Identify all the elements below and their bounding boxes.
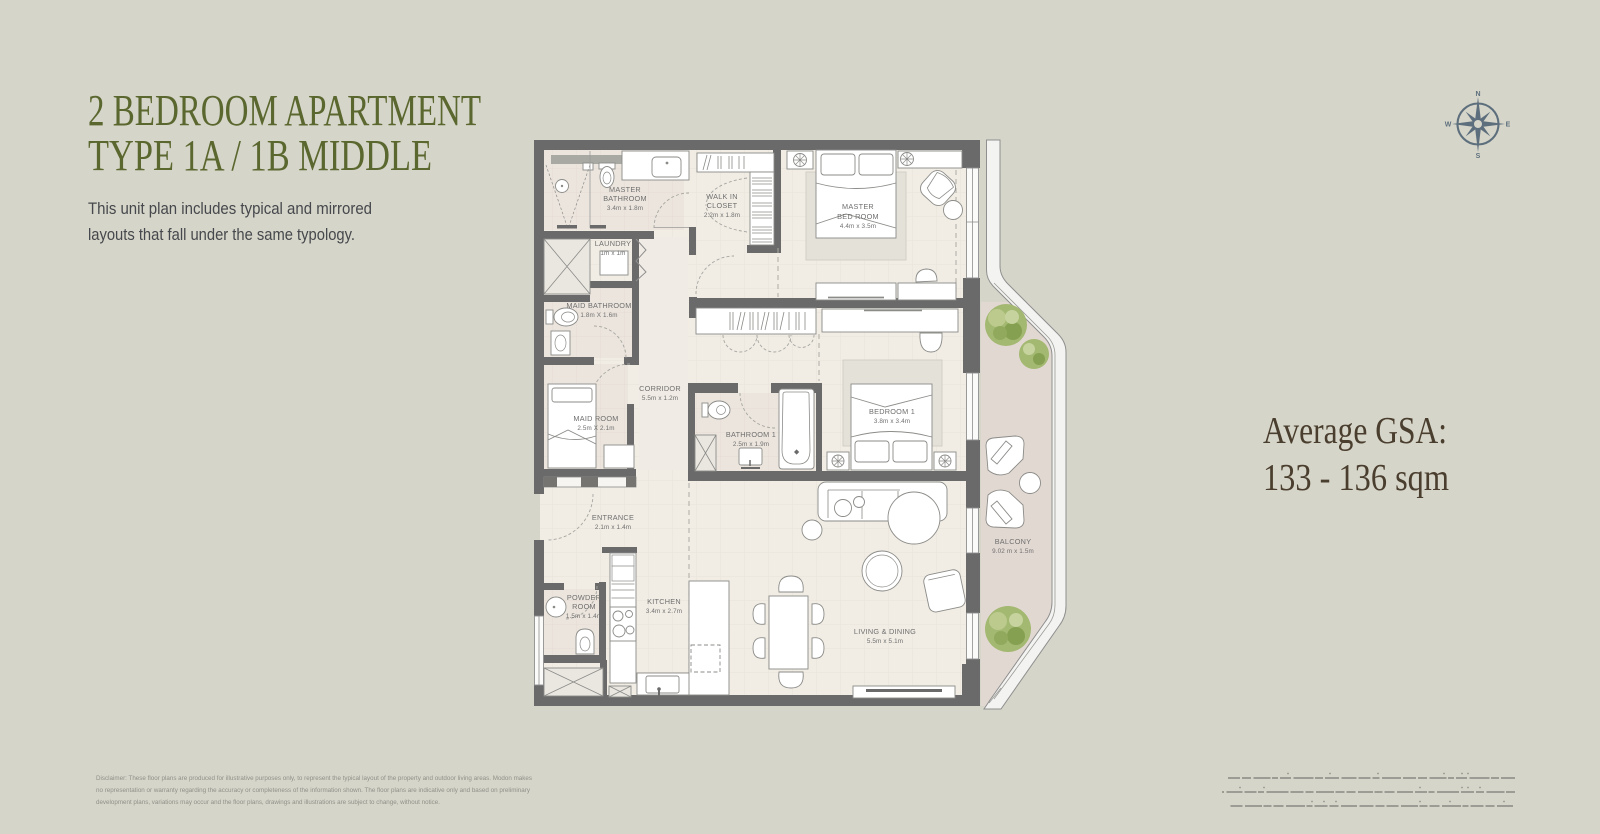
svg-text:ENTRANCE: ENTRANCE (592, 513, 634, 522)
svg-text:CORRIDOR: CORRIDOR (639, 384, 681, 393)
svg-text:development plans, variations: development plans, variations may occur … (96, 799, 440, 806)
svg-text:5.5m x 5.1m: 5.5m x 5.1m (867, 638, 903, 645)
svg-text:1.8m X 1.6m: 1.8m X 1.6m (580, 312, 617, 319)
svg-text:2.5m x 1.9m: 2.5m x 1.9m (733, 441, 769, 448)
svg-text:1.5m x 1.4m: 1.5m x 1.4m (566, 613, 602, 620)
svg-text:CLOSET: CLOSET (707, 201, 738, 210)
svg-text:W: W (1445, 122, 1452, 129)
svg-text:POWDER: POWDER (567, 593, 601, 602)
svg-text:Average GSA:: Average GSA: (1263, 410, 1447, 452)
svg-text:BED ROOM: BED ROOM (837, 212, 879, 221)
svg-text:no representation or warranty: no representation or warranty regarding … (96, 787, 531, 794)
svg-text:2 BEDROOM APARTMENT: 2 BEDROOM APARTMENT (88, 86, 481, 135)
svg-text:LIVING & DINING: LIVING & DINING (854, 627, 916, 636)
svg-text:layouts that fall under the sa: layouts that fall under the same typolog… (88, 226, 355, 244)
svg-text:2.1m x 1.4m: 2.1m x 1.4m (595, 524, 631, 531)
svg-text:BATHROOM: BATHROOM (603, 194, 647, 203)
svg-text:BEDROOM 1: BEDROOM 1 (869, 407, 915, 416)
svg-text:MASTER: MASTER (609, 185, 641, 194)
svg-text:Disclaimer: These floor plans: Disclaimer: These floor plans are produc… (96, 775, 533, 782)
svg-text:TYPE 1A / 1B MIDDLE: TYPE 1A / 1B MIDDLE (88, 131, 432, 180)
svg-text:ROOM: ROOM (572, 602, 596, 611)
svg-text:BALCONY: BALCONY (995, 537, 1032, 546)
svg-text:2.2m x 1.8m: 2.2m x 1.8m (704, 212, 740, 219)
svg-text:133 - 136 sqm: 133 - 136 sqm (1263, 457, 1449, 499)
svg-text:MAID ROOM: MAID ROOM (573, 414, 618, 423)
svg-text:This unit plan includes typica: This unit plan includes typical and mirr… (88, 200, 372, 218)
svg-text:9.02 m x 1.5m: 9.02 m x 1.5m (992, 548, 1034, 555)
svg-text:E: E (1506, 122, 1511, 129)
svg-text:4.4m x 3.5m: 4.4m x 3.5m (840, 223, 876, 230)
svg-text:S: S (1476, 153, 1481, 160)
svg-text:MASTER: MASTER (842, 202, 874, 211)
svg-text:N: N (1475, 91, 1480, 98)
svg-text:2.5m X 2.1m: 2.5m X 2.1m (577, 425, 614, 432)
svg-text:3.8m x 3.4m: 3.8m x 3.4m (874, 418, 910, 425)
svg-text:MAID BATHROOM: MAID BATHROOM (566, 301, 631, 310)
svg-text:3.4m x 1.8m: 3.4m x 1.8m (607, 205, 643, 212)
svg-text:LAUNDRY: LAUNDRY (595, 239, 632, 248)
svg-text:3.4m x 2.7m: 3.4m x 2.7m (646, 608, 682, 615)
svg-text:WALK IN: WALK IN (706, 192, 737, 201)
svg-text:BATHROOM 1: BATHROOM 1 (726, 430, 776, 439)
svg-text:1m x 1m: 1m x 1m (600, 250, 625, 257)
svg-text:KITCHEN: KITCHEN (647, 597, 681, 606)
svg-text:5.5m x 1.2m: 5.5m x 1.2m (642, 395, 678, 402)
